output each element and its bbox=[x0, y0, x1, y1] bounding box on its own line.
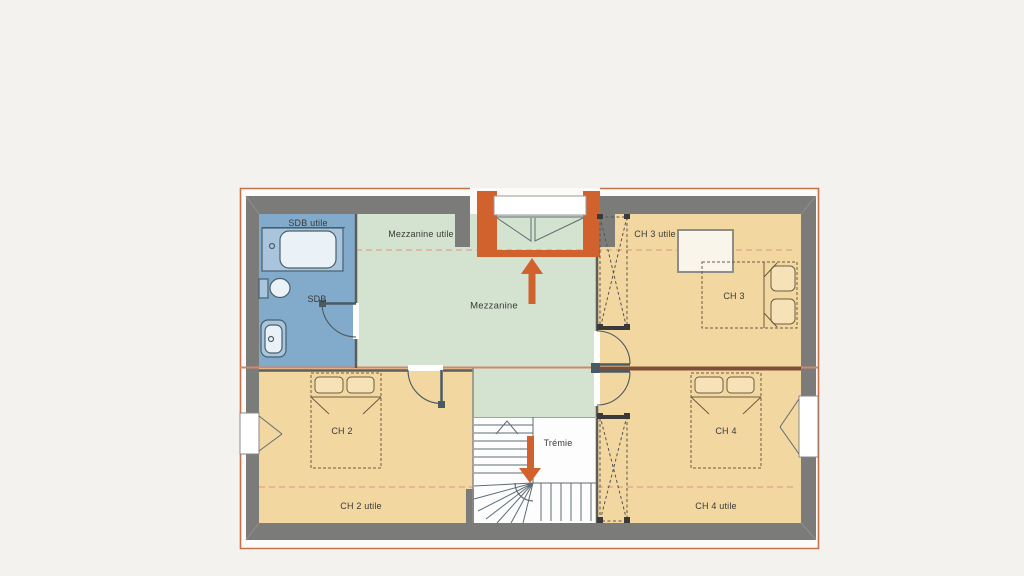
bay-jamb-left bbox=[455, 214, 470, 247]
ch3-label: CH 3 bbox=[723, 291, 744, 301]
stair-up-arrow-shaft bbox=[529, 273, 536, 304]
ch3-roof-window bbox=[678, 230, 733, 272]
sdb-label: SDB bbox=[307, 294, 326, 304]
bay-window bbox=[494, 196, 586, 215]
corridor-mezzanine bbox=[473, 368, 597, 417]
mezzanine-area-label: Mezzanine utile bbox=[388, 229, 454, 239]
wall-top-left bbox=[246, 196, 470, 214]
bay-frame-bottom bbox=[477, 250, 600, 257]
ch2-area-label: CH 2 utile bbox=[340, 501, 382, 511]
ch3-bed-pillow-bottom bbox=[771, 299, 795, 324]
ch2-bed-pillow-right bbox=[347, 377, 374, 393]
ch4-area-label: CH 4 utile bbox=[695, 501, 737, 511]
stair-down-arrow-shaft bbox=[527, 436, 534, 469]
window-bay-floor bbox=[494, 212, 586, 252]
ch4-bed-pillow-right bbox=[727, 377, 754, 393]
ch2-door-cap bbox=[438, 401, 445, 408]
ch2-bed-pillow-left bbox=[315, 377, 343, 393]
ch3-bed-pillow-top bbox=[771, 266, 795, 291]
floor-plan-page: SDB utile SDB Mezzanine utile Mezzanine … bbox=[0, 0, 1024, 576]
wall-bottom bbox=[246, 523, 816, 540]
floor-plan-canvas bbox=[0, 0, 1024, 576]
mezzanine-label: Mezzanine bbox=[470, 301, 518, 312]
bathtub-basin bbox=[280, 231, 336, 268]
tremie-label: Trémie bbox=[544, 438, 573, 448]
ch4-bed-pillow-left bbox=[695, 377, 723, 393]
door-hinge-block bbox=[591, 363, 600, 373]
toilet-icon bbox=[270, 279, 290, 298]
ch2-window bbox=[240, 413, 259, 454]
sdb-area-label: SDB utile bbox=[288, 218, 327, 228]
toilet-tank bbox=[259, 279, 268, 298]
wall-top-right bbox=[600, 196, 816, 214]
ch3-area-label: CH 3 utile bbox=[634, 229, 676, 239]
ch2-label: CH 2 bbox=[331, 426, 352, 436]
ch4-label: CH 4 bbox=[715, 426, 736, 436]
ch4-window bbox=[799, 396, 818, 457]
